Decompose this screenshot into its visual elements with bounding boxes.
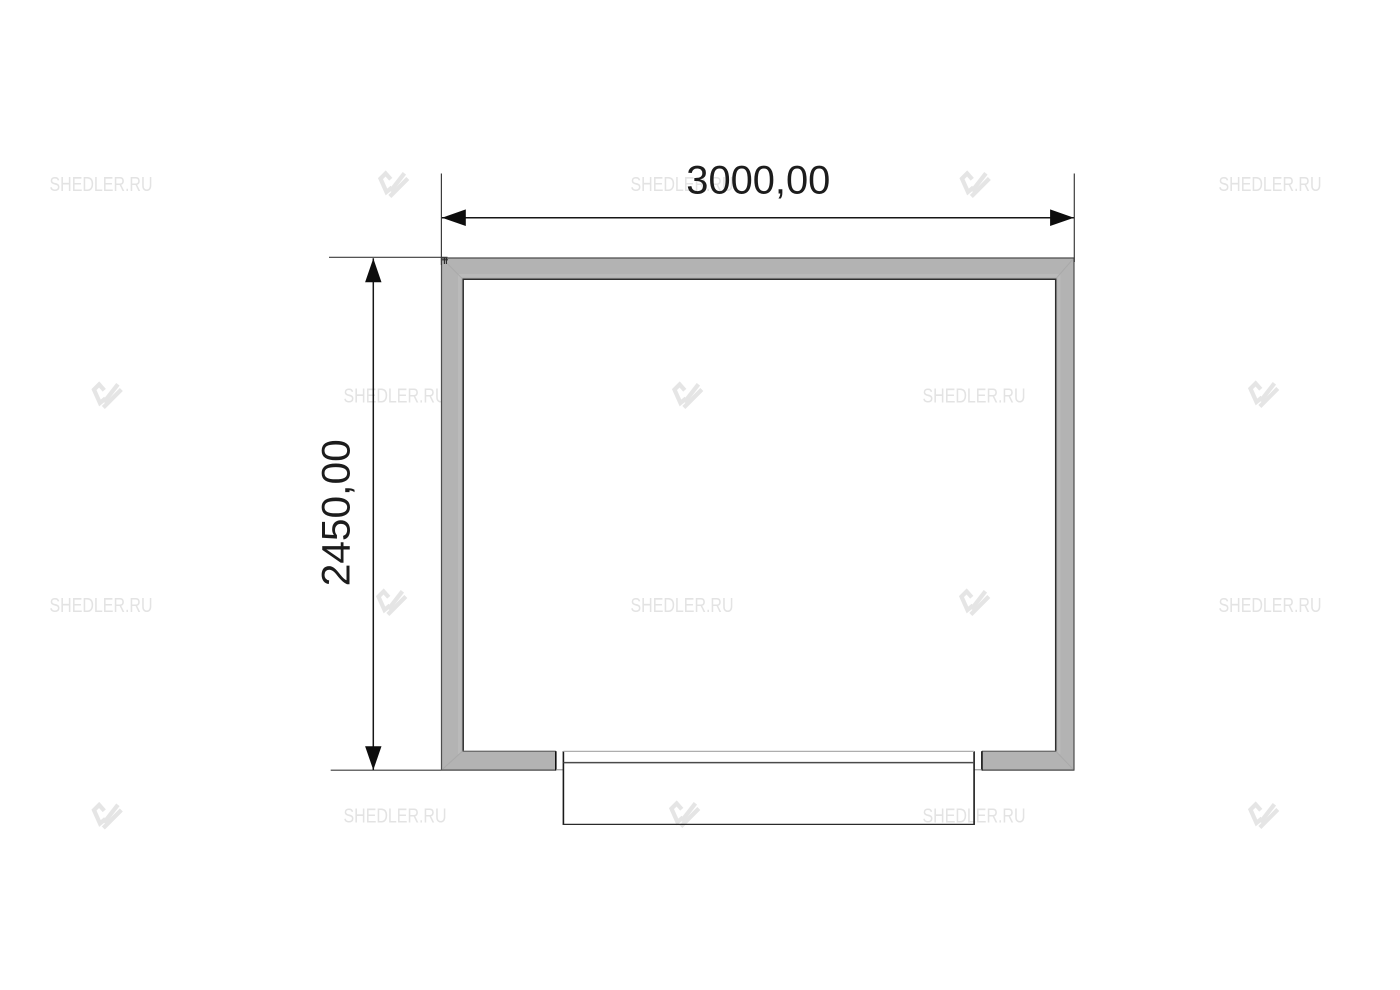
svg-text:SHEDLER.RU: SHEDLER.RU — [344, 386, 447, 408]
svg-text:SHEDLER.RU: SHEDLER.RU — [344, 806, 447, 828]
svg-text:SHEDLER.RU: SHEDLER.RU — [631, 595, 734, 617]
svg-text:SHEDLER.RU: SHEDLER.RU — [1219, 595, 1322, 617]
svg-text:SHEDLER.RU: SHEDLER.RU — [50, 595, 153, 617]
svg-text:SHEDLER.RU: SHEDLER.RU — [1219, 174, 1322, 196]
svg-text:3000,00: 3000,00 — [686, 159, 830, 203]
svg-text:SHEDLER.RU: SHEDLER.RU — [50, 174, 153, 196]
svg-text:SHEDLER.RU: SHEDLER.RU — [923, 386, 1026, 408]
svg-text:2450,00: 2450,00 — [315, 439, 359, 586]
